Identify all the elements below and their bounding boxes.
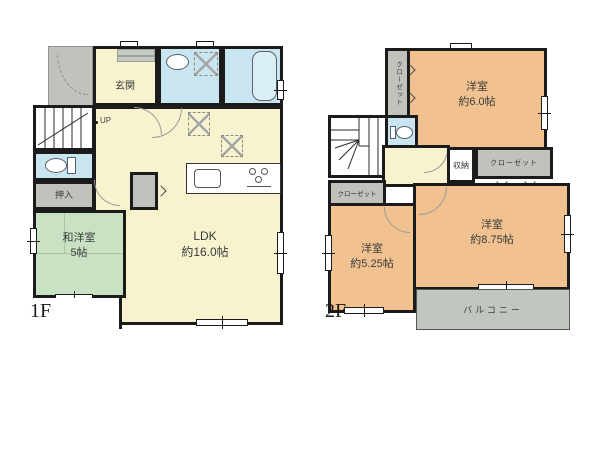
- storage-2f: 収納: [447, 147, 475, 183]
- bedroom525-label: 洋室 約5.25帖: [330, 242, 414, 272]
- stairs-2f: [328, 115, 388, 178]
- storage-label: 収納: [450, 150, 472, 180]
- balcony: バルコニー: [416, 289, 570, 330]
- window: [541, 96, 548, 130]
- bedroom525-name: 洋室: [330, 242, 414, 257]
- bedroom875-name: 洋室: [436, 218, 548, 233]
- closet-left-label: クローゼット: [331, 183, 383, 203]
- bedroom875-size: 約8.75帖: [436, 233, 548, 248]
- balcony-label: バルコニー: [417, 290, 569, 329]
- window: [564, 215, 571, 253]
- bedroom6-size: 約6.0帖: [412, 95, 542, 110]
- toilet-icon: [396, 126, 413, 139]
- floor-2-label: 2F: [325, 300, 346, 323]
- stairs-winder-icon: [331, 118, 385, 175]
- closet-mid: クローゼット: [475, 147, 553, 179]
- vent-mark: [450, 43, 472, 49]
- bedroom525-size: 約5.25帖: [330, 257, 414, 272]
- closet-mid-label: クローゼット: [478, 150, 550, 176]
- bedroom6-name: 洋室: [412, 80, 542, 95]
- floor-plan: 玄関 UP 押入 和洋室 5帖: [0, 0, 600, 449]
- window: [344, 307, 384, 314]
- bedroom875-label: 洋室 約8.75帖: [436, 218, 548, 248]
- window: [325, 235, 332, 271]
- closet-top-label: クローゼット: [388, 51, 407, 115]
- bedroom6-label: 洋室 約6.0帖: [412, 80, 542, 110]
- floor-2-plan: クローゼット 洋室 約6.0帖 DN 収納: [0, 0, 600, 449]
